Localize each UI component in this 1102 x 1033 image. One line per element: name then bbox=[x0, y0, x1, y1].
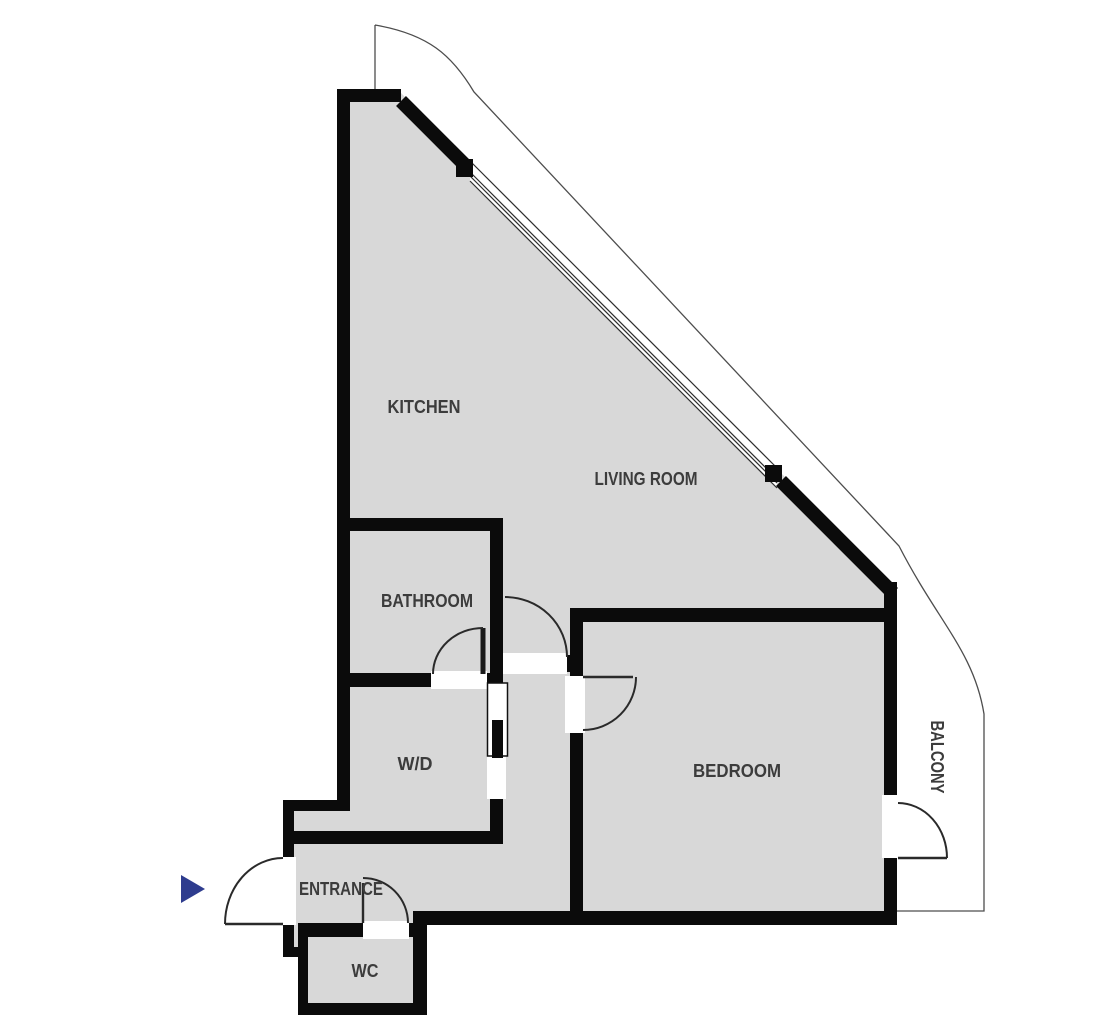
entrance-door-gap bbox=[281, 857, 296, 925]
bathroom-bottom-wall-left bbox=[337, 673, 431, 687]
wd-bottom-wall bbox=[283, 831, 503, 844]
wd-label: W/D bbox=[398, 754, 433, 774]
wc-door-gap bbox=[363, 921, 409, 939]
wc-top-wall-left bbox=[298, 923, 365, 937]
entrance-door-arc bbox=[225, 858, 283, 924]
living-room-door-gap bbox=[503, 653, 567, 674]
entrance-arrow-icon bbox=[181, 875, 205, 903]
entrance-label: ENTRANCE bbox=[299, 879, 383, 899]
balcony-door-gap bbox=[882, 795, 899, 858]
kitchen-label: KITCHEN bbox=[388, 397, 461, 417]
bottom-wall bbox=[420, 911, 897, 925]
bathroom-top-wall bbox=[344, 518, 503, 531]
bathroom-door-gap bbox=[431, 671, 487, 689]
floorplan-canvas: KITCHEN LIVING ROOM BATHROOM W/D BEDROOM… bbox=[0, 0, 1102, 1033]
left-wall-entrance-upper bbox=[283, 800, 294, 857]
wc-top-wall-right bbox=[408, 923, 427, 937]
bedroom-label: BEDROOM bbox=[693, 761, 781, 781]
balcony-door-arc bbox=[898, 803, 947, 858]
window-end-post-lower bbox=[765, 465, 782, 482]
right-wall bbox=[884, 582, 897, 925]
window-end-post-upper bbox=[456, 159, 473, 177]
bedroom-left-wall bbox=[570, 608, 583, 925]
bathroom-label: BATHROOM bbox=[381, 591, 473, 611]
wc-bottom-wall bbox=[298, 1003, 427, 1015]
pocket-door-leaf bbox=[492, 720, 503, 758]
floorplan-svg: KITCHEN LIVING ROOM BATHROOM W/D BEDROOM… bbox=[0, 0, 1102, 1033]
living-room-label: LIVING ROOM bbox=[595, 469, 698, 489]
balcony-label: BALCONY bbox=[927, 721, 947, 794]
bedroom-door-gap bbox=[565, 676, 585, 733]
wc-label: WC bbox=[352, 961, 379, 981]
apartment-floor bbox=[283, 89, 897, 1015]
bedroom-top-wall bbox=[570, 608, 897, 622]
left-wall bbox=[337, 89, 350, 811]
